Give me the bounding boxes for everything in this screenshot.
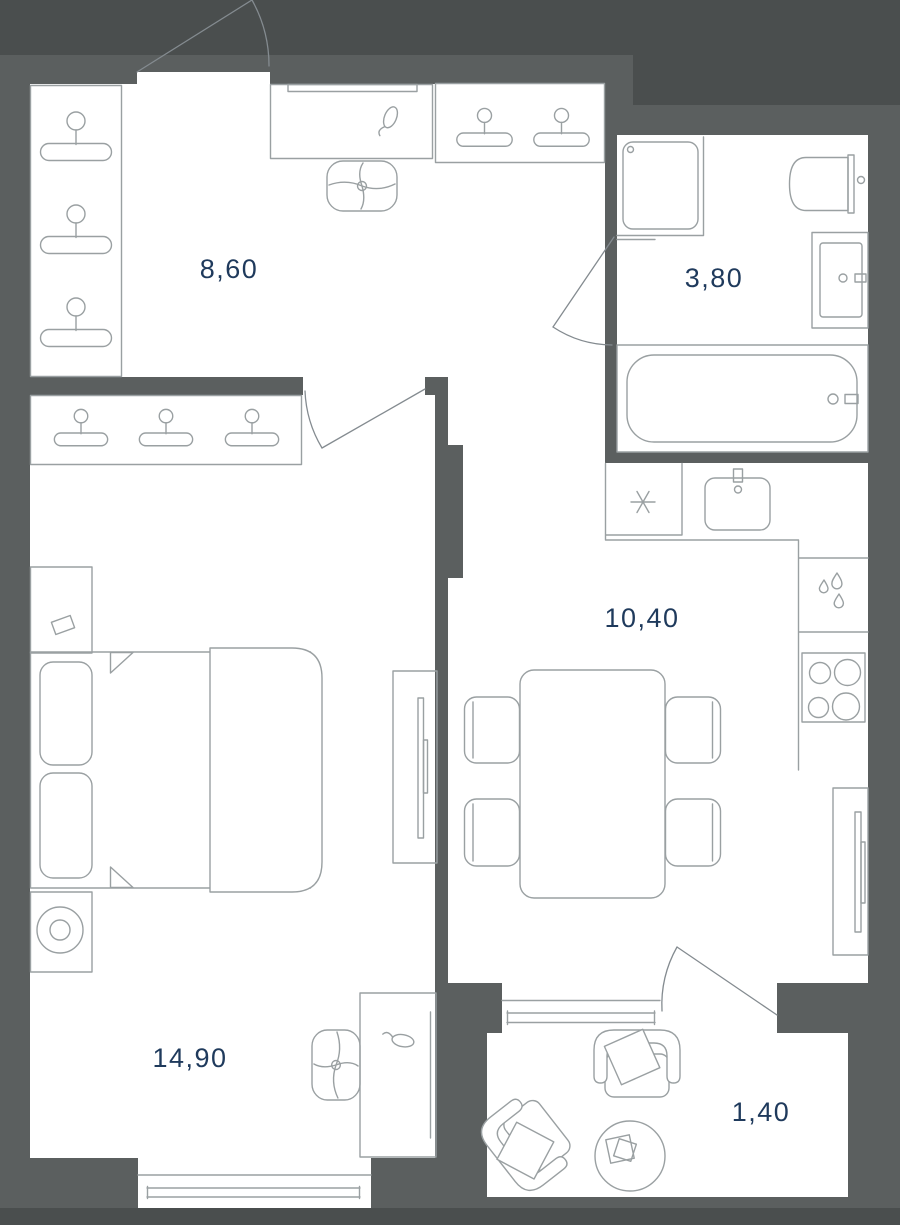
room-label-bedroom: 14,90: [152, 1043, 227, 1073]
wall-bedroom-door-stub: [425, 377, 448, 390]
floor-hallway: [30, 84, 605, 377]
floor-kitchen-window-zone: [502, 1000, 660, 1033]
room-label-hallway: 8,60: [200, 254, 259, 284]
blanket: [210, 648, 322, 892]
floor-plan: 8,60 3,80 10,40 14,90 1,40: [0, 0, 900, 1225]
floor-balcony-door-gap: [660, 1000, 777, 1033]
floor-kitchen: [448, 463, 868, 983]
exterior-dark-top-band: [0, 0, 900, 55]
room-label-bathroom: 3,80: [685, 263, 744, 293]
wall-pilaster: [448, 445, 463, 578]
pillow: [40, 773, 92, 878]
exterior-dark-top-right: [633, 55, 900, 105]
floor-kitchen-window-band: [502, 983, 777, 1000]
wall-bathroom-upper: [605, 55, 617, 237]
floor-bedroom-window-gap: [138, 1158, 371, 1208]
wall-kitchen-top: [605, 452, 868, 463]
floor-bedroom-door-opening: [303, 377, 425, 395]
floor-plan-svg: 8,60 3,80 10,40 14,90 1,40: [0, 0, 900, 1225]
floor-entrance-opening: [137, 72, 270, 85]
room-label-kitchen: 10,40: [604, 603, 679, 633]
wall-bathroom-lower: [605, 343, 617, 452]
exterior-dark-bottom-band: [0, 1208, 900, 1225]
pillow: [40, 662, 92, 765]
room-label-balcony: 1,40: [732, 1097, 791, 1127]
floor-passage: [448, 377, 605, 463]
toilet-icon: [790, 158, 849, 211]
